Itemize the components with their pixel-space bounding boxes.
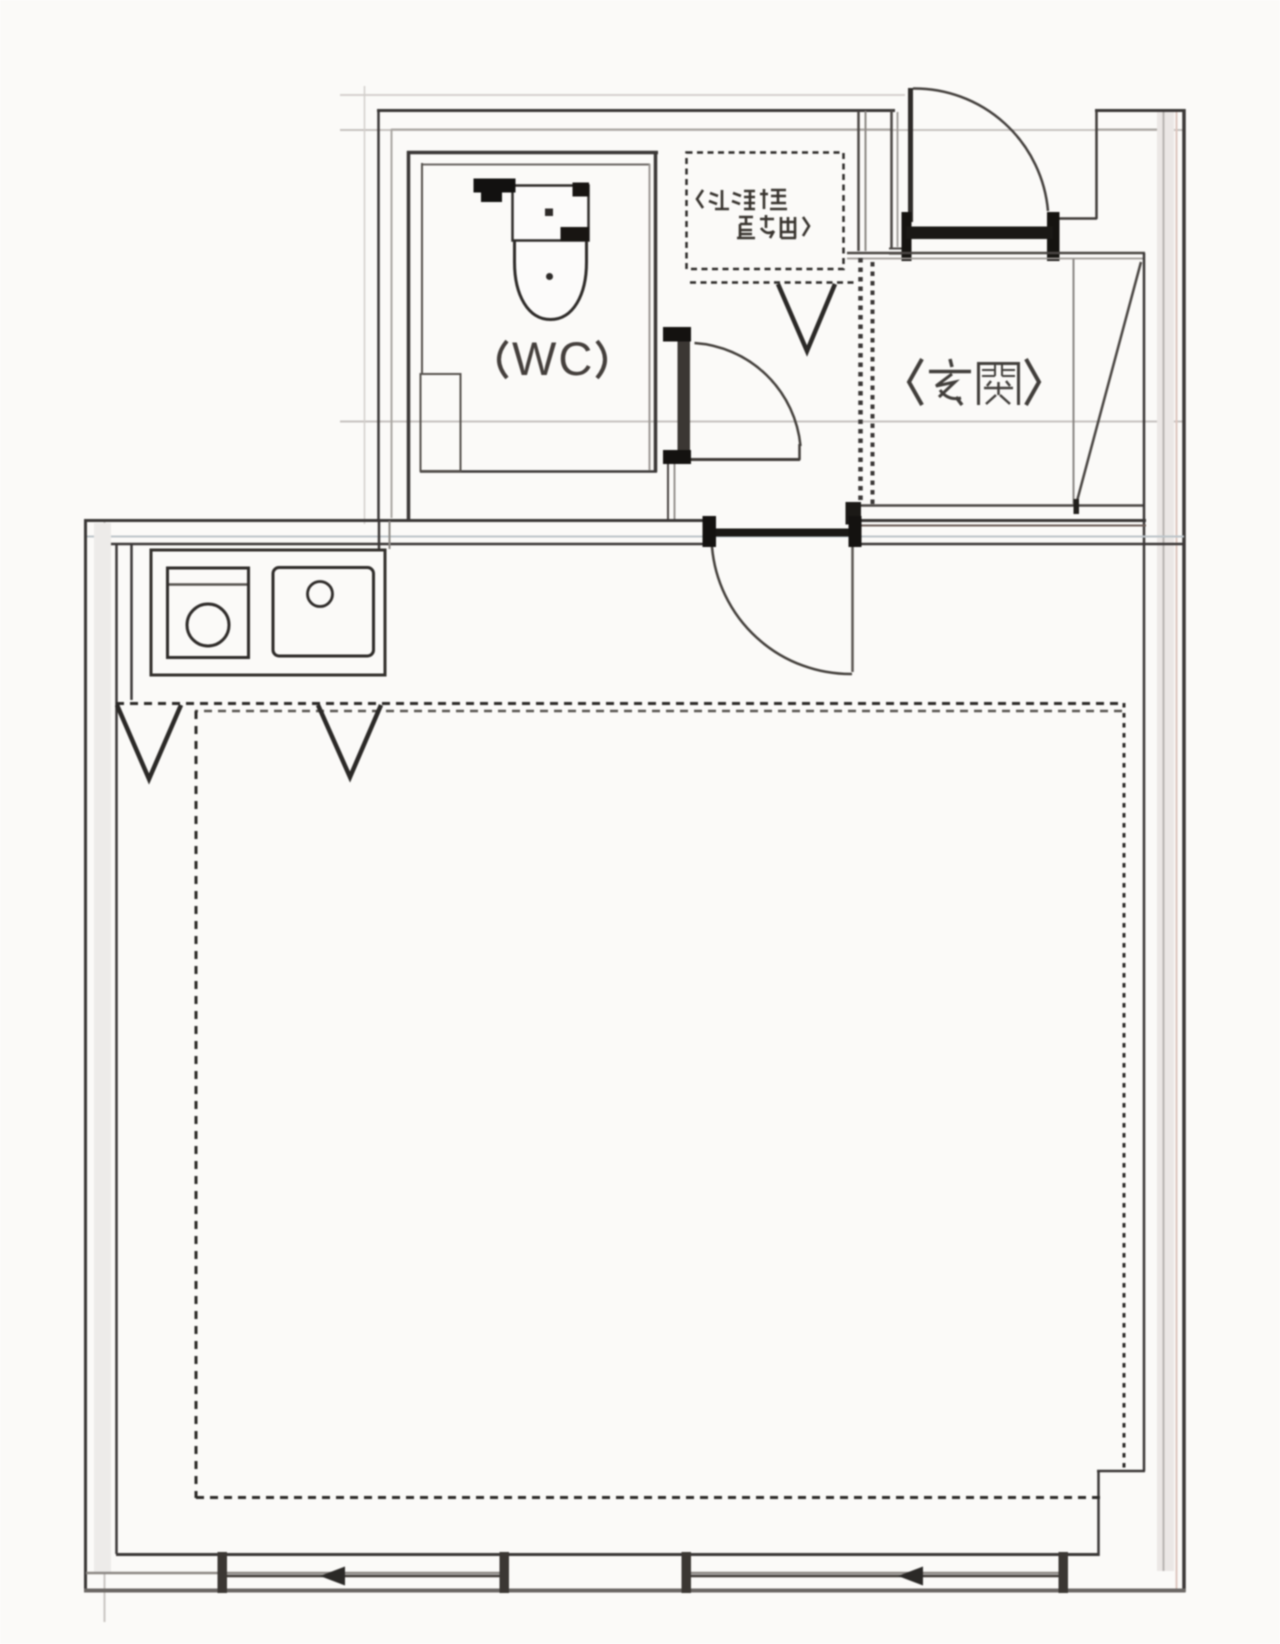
svg-text:WC: WC [512, 332, 594, 385]
